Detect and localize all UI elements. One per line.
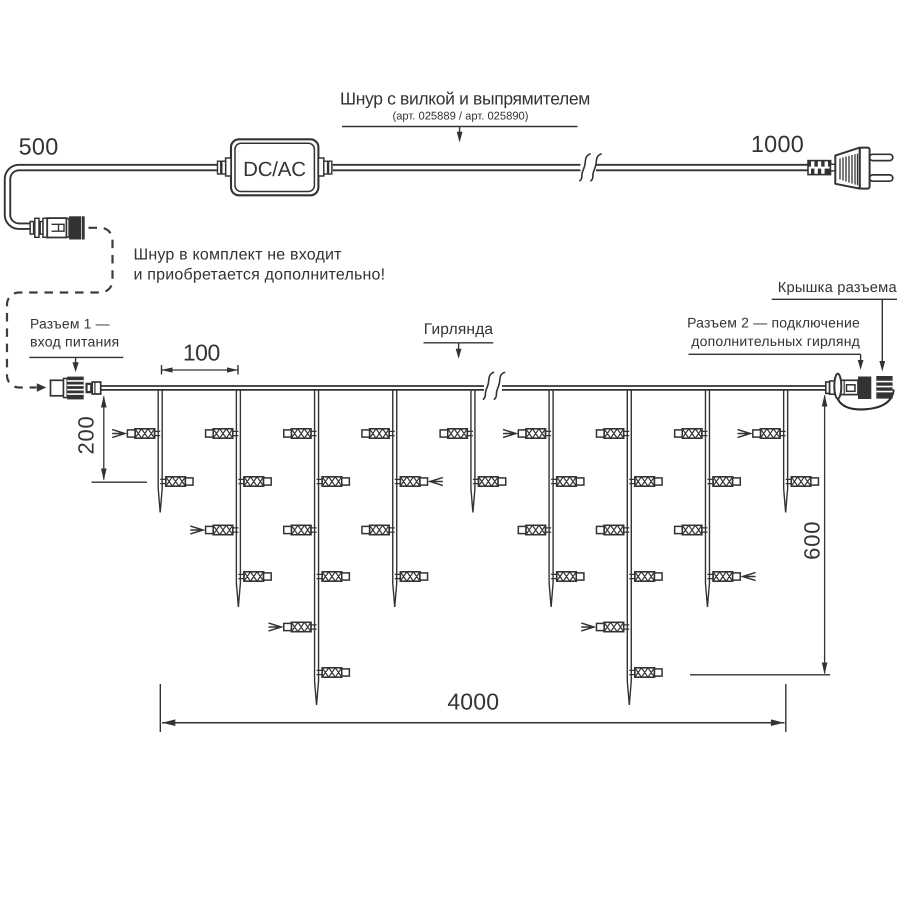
- svg-text:Гирлянда: Гирлянда: [424, 321, 494, 338]
- svg-text:4000: 4000: [447, 689, 499, 715]
- svg-text:DC/AC: DC/AC: [243, 158, 306, 181]
- svg-text:Шнур с вилкой и выпрямителем: Шнур с вилкой и выпрямителем: [340, 89, 590, 109]
- svg-text:вход питания: вход питания: [30, 334, 119, 350]
- svg-text:Крышка разъема: Крышка разъема: [778, 280, 898, 296]
- svg-text:дополнительных гирлянд: дополнительных гирлянд: [691, 333, 860, 349]
- svg-text:500: 500: [19, 134, 59, 160]
- svg-text:1000: 1000: [751, 131, 804, 157]
- svg-text:Шнур в комплект не входит: Шнур в комплект не входит: [134, 247, 343, 264]
- svg-text:200: 200: [74, 415, 99, 454]
- svg-text:и приобретается дополнительно!: и приобретается дополнительно!: [134, 267, 386, 284]
- svg-text:Разъем 1 —: Разъем 1 —: [30, 316, 110, 332]
- svg-text:Разъем 2 — подключение: Разъем 2 — подключение: [687, 315, 860, 331]
- svg-text:100: 100: [183, 339, 220, 365]
- svg-text:600: 600: [799, 521, 824, 560]
- svg-text:(арт. 025889 / арт. 025890): (арт. 025889 / арт. 025890): [392, 111, 528, 123]
